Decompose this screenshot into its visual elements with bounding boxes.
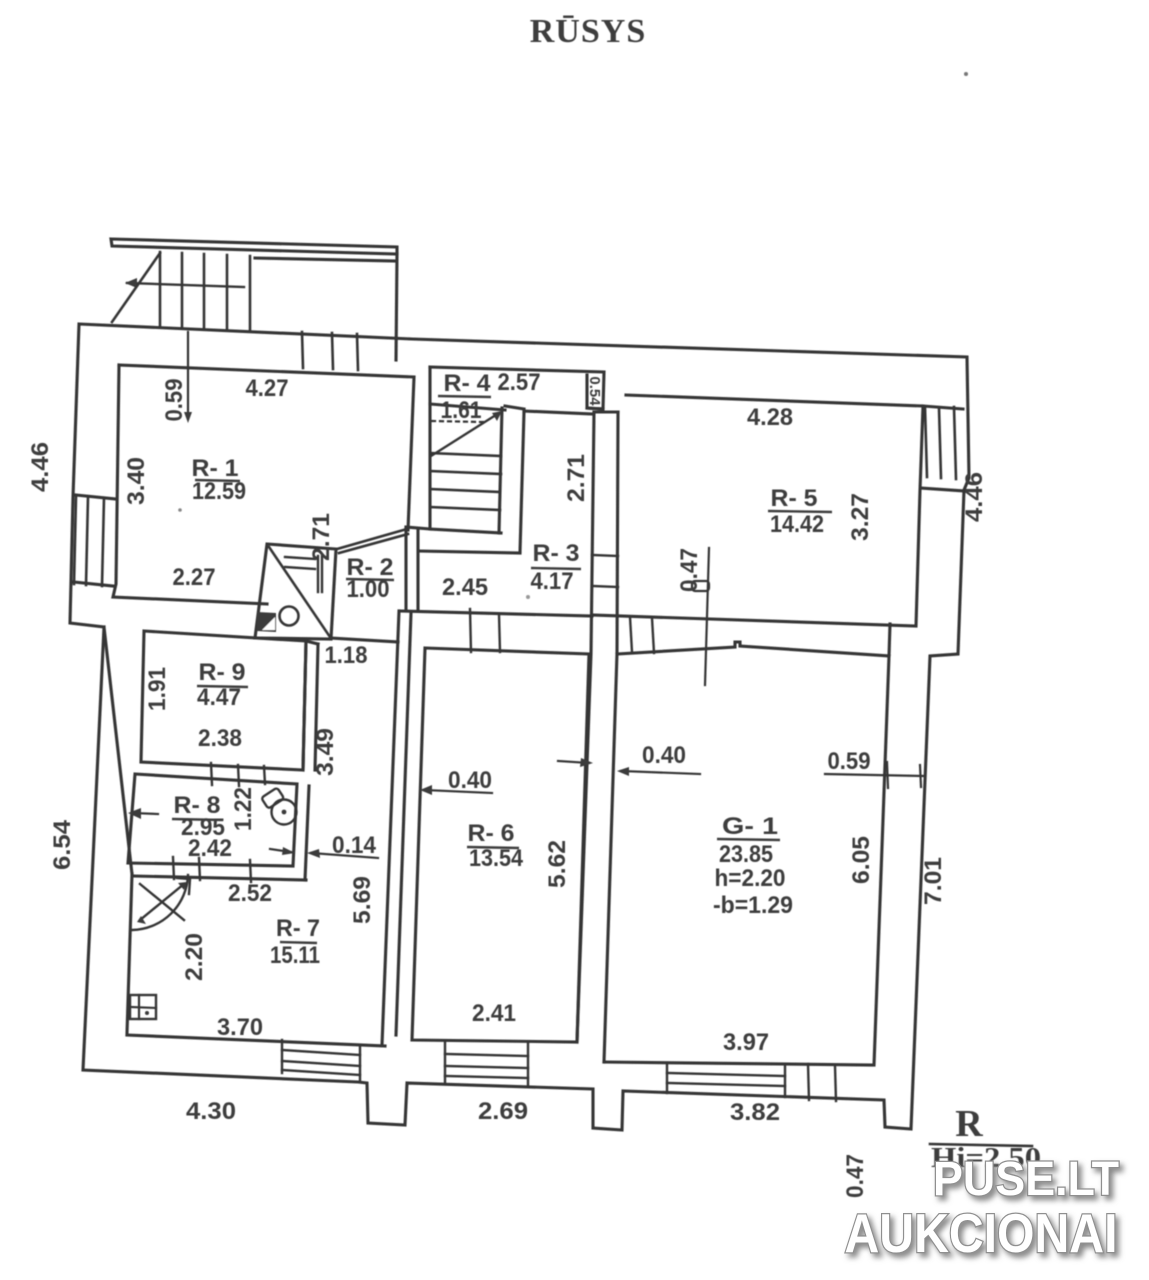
svg-text:2.41: 2.41	[472, 1000, 516, 1027]
svg-text:1.00: 1.00	[347, 576, 390, 603]
svg-text:6.54: 6.54	[49, 819, 76, 870]
svg-text:4.17: 4.17	[531, 568, 574, 595]
svg-text:AUKCIONAI: AUKCIONAI	[845, 1202, 1118, 1264]
svg-text:15.11: 15.11	[270, 942, 320, 969]
svg-text:R- 3: R- 3	[533, 540, 580, 567]
svg-text:2.57: 2.57	[498, 369, 541, 396]
svg-text:R- 6: R- 6	[468, 820, 515, 847]
svg-text:R- 5: R- 5	[771, 485, 818, 512]
svg-text:2.69: 2.69	[478, 1098, 528, 1125]
svg-text:1.91: 1.91	[144, 667, 171, 711]
svg-text:0.59: 0.59	[828, 748, 871, 775]
svg-text:R- 9: R- 9	[199, 659, 246, 686]
svg-text:5.69: 5.69	[349, 876, 376, 924]
svg-text:R: R	[955, 1103, 983, 1145]
svg-text:0.54: 0.54	[586, 376, 603, 406]
svg-text:R- 4: R- 4	[444, 370, 492, 397]
svg-text:2.71: 2.71	[308, 513, 335, 561]
svg-text:2.42: 2.42	[188, 835, 232, 862]
svg-text:1.22: 1.22	[230, 787, 257, 831]
svg-text:5.62: 5.62	[544, 840, 571, 888]
svg-text:3.70: 3.70	[217, 1014, 263, 1041]
svg-text:2.20: 2.20	[181, 933, 208, 981]
svg-text:1.18: 1.18	[325, 642, 368, 669]
svg-text:7.01: 7.01	[920, 857, 947, 905]
svg-text:4.27: 4.27	[246, 375, 289, 402]
svg-text:3.49: 3.49	[312, 728, 339, 776]
svg-text:R- 7: R- 7	[276, 915, 320, 942]
svg-text:2.52: 2.52	[228, 880, 272, 907]
svg-text:4.30: 4.30	[186, 1098, 236, 1125]
svg-text:2.27: 2.27	[173, 564, 216, 591]
svg-text:4.46: 4.46	[27, 442, 54, 492]
svg-text:1.61: 1.61	[441, 397, 482, 424]
svg-text:3.82: 3.82	[730, 1099, 780, 1126]
svg-text:PUSE.LT: PUSE.LT	[933, 1153, 1119, 1206]
svg-text:RŪSYS: RŪSYS	[530, 13, 646, 50]
svg-text:3.97: 3.97	[723, 1029, 769, 1056]
svg-text:h=2.20: h=2.20	[715, 865, 786, 892]
svg-text:13.54: 13.54	[469, 845, 524, 872]
svg-text:G- 1: G- 1	[722, 813, 778, 840]
svg-text:0.40: 0.40	[642, 742, 686, 769]
svg-text:6.05: 6.05	[848, 836, 875, 884]
svg-text:0.47: 0.47	[676, 548, 703, 592]
svg-text:3.40: 3.40	[123, 457, 150, 505]
svg-text:3.27: 3.27	[847, 493, 874, 541]
svg-text:4.28: 4.28	[747, 404, 793, 431]
svg-text:2.71: 2.71	[563, 454, 590, 502]
svg-text:-b=1.29: -b=1.29	[713, 892, 793, 919]
svg-text:0.40: 0.40	[448, 767, 492, 794]
svg-text:0.47: 0.47	[842, 1154, 869, 1198]
svg-text:2.38: 2.38	[198, 725, 242, 752]
svg-text:14.42: 14.42	[770, 511, 824, 538]
svg-text:4.47: 4.47	[197, 684, 241, 711]
svg-text:0.59: 0.59	[161, 379, 188, 422]
svg-text:0.14: 0.14	[332, 832, 377, 859]
svg-text:12.59: 12.59	[192, 478, 246, 505]
svg-text:2.45: 2.45	[442, 574, 488, 601]
svg-text:23.85: 23.85	[719, 841, 773, 868]
svg-text:4.46: 4.46	[961, 472, 988, 522]
